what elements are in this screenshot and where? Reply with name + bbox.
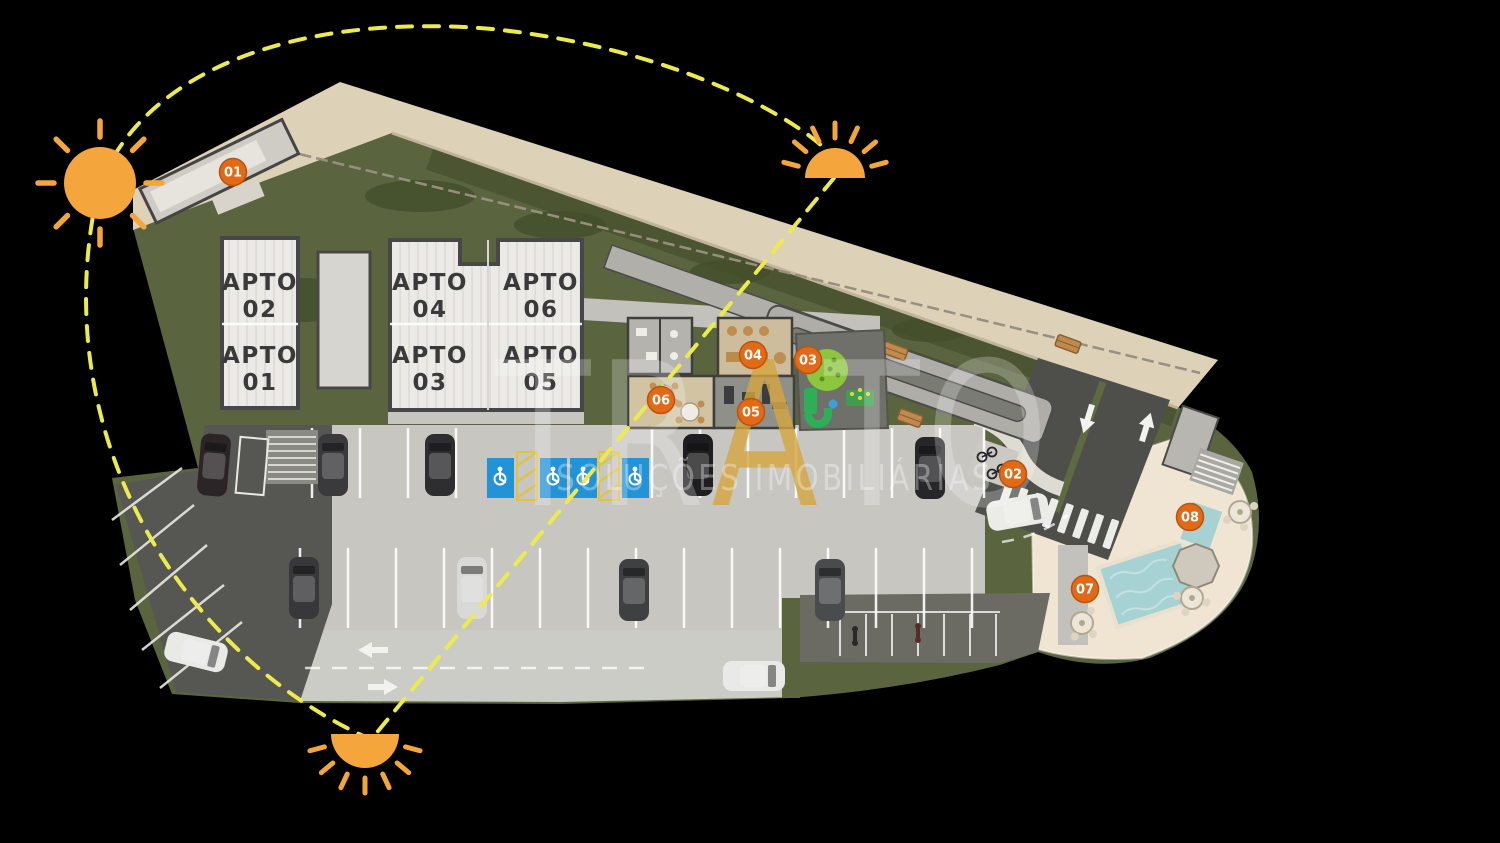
- marker-08: 08: [1177, 504, 1204, 531]
- car: [425, 434, 455, 496]
- sun-full-icon: [38, 121, 162, 245]
- car: [619, 559, 649, 621]
- svg-text:03: 03: [799, 354, 817, 369]
- svg-text:08: 08: [1181, 511, 1199, 526]
- apto-04-number: 04: [412, 297, 447, 323]
- marker-03: 03: [795, 347, 822, 374]
- apto-01-label: APTO: [222, 343, 298, 369]
- marker-07: 07: [1072, 576, 1099, 603]
- svg-text:04: 04: [744, 349, 762, 364]
- marker-02: 02: [1000, 461, 1027, 488]
- car: [289, 557, 319, 619]
- marker-04: 04: [740, 342, 767, 369]
- svg-text:07: 07: [1076, 583, 1094, 598]
- apto-06-label: APTO: [503, 270, 579, 296]
- marker-05: 05: [738, 399, 765, 426]
- car: [815, 559, 845, 621]
- stairs: [266, 430, 318, 484]
- building-connector: [318, 252, 370, 388]
- watermark: TRATO SOLUÇÕES IMOBILIÁRIAS: [494, 321, 1055, 553]
- apto-04-label: APTO: [392, 270, 468, 296]
- apto-01-number: 01: [242, 370, 277, 396]
- apto-03-label: APTO: [392, 343, 468, 369]
- apto-06-number: 06: [523, 297, 558, 323]
- svg-text:02: 02: [1004, 468, 1022, 483]
- marker-06: 06: [648, 387, 675, 414]
- car: [457, 557, 487, 619]
- marker-01: 01: [220, 159, 247, 186]
- apto-03-number: 03: [412, 370, 447, 396]
- svg-text:06: 06: [652, 394, 670, 409]
- apto-02-number: 02: [242, 297, 277, 323]
- sunrise-icon: [784, 123, 886, 178]
- floor-plan-image: APTO 02 APTO 01 APTO 04 APTO 03 APTO 06 …: [0, 0, 1500, 843]
- sunset-icon: [310, 734, 420, 793]
- watermark-brand: TRATO: [494, 321, 1055, 553]
- gazebo: [1173, 544, 1219, 588]
- svg-text:01: 01: [224, 166, 242, 181]
- svg-text:05: 05: [742, 406, 760, 421]
- car: [723, 661, 785, 691]
- car: [196, 433, 231, 497]
- watermark-tagline: SOLUÇÕES IMOBILIÁRIAS: [556, 455, 994, 499]
- apto-02-label: APTO: [222, 270, 298, 296]
- car: [318, 434, 348, 496]
